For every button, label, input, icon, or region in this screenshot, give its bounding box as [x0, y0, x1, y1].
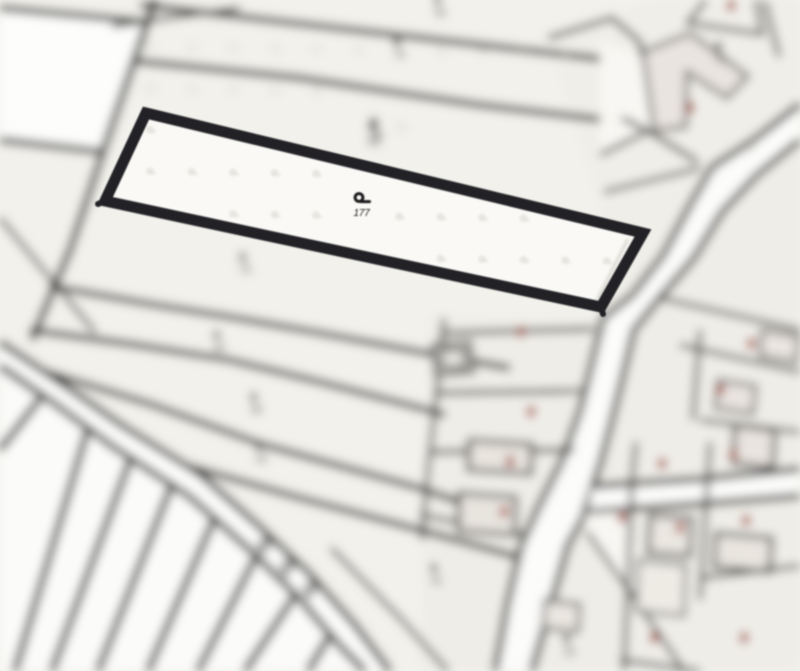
svg-text:41: 41 [431, 576, 443, 587]
svg-text:78: 78 [394, 50, 406, 61]
svg-text:22: 22 [564, 647, 576, 658]
svg-text:92: 92 [435, 8, 447, 19]
svg-text:64: 64 [214, 343, 226, 354]
svg-text:52: 52 [256, 454, 268, 465]
svg-text:83: 83 [372, 130, 384, 141]
svg-text:177: 177 [354, 208, 371, 219]
svg-text:58: 58 [251, 405, 263, 416]
svg-text:75: 75 [240, 265, 252, 276]
svg-text:31: 31 [716, 54, 728, 65]
